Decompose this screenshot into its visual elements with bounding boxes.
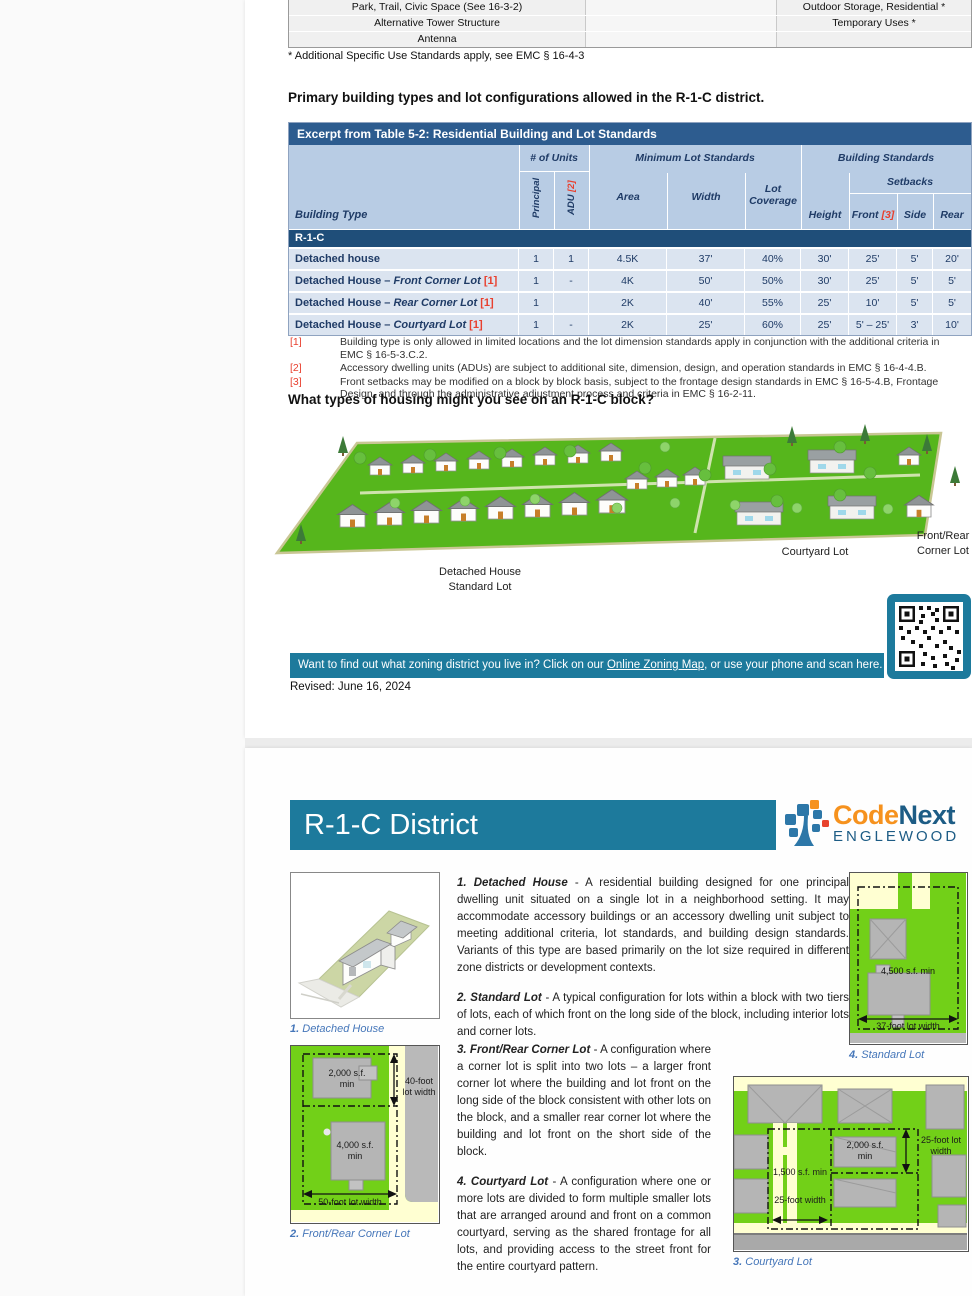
cell-height: 25': [801, 315, 849, 335]
codenext-tree-icon: [783, 800, 829, 848]
label-front-rear-corner-lot: Front/Rear Corner Lot: [911, 529, 972, 559]
diagram-label: 4,500 s.f. min: [876, 966, 940, 977]
cell-coverage: 55%: [745, 293, 801, 313]
col-header-side: Side: [897, 209, 933, 221]
diagram-label: 50-foot lot width: [306, 1197, 394, 1208]
use-cell: Outdoor Storage, Residential *: [777, 0, 971, 15]
use-cell: [586, 32, 777, 47]
caption-detached-house: 1. Detached House: [290, 1023, 384, 1035]
cell-principal: 1: [519, 315, 554, 335]
codenext-logo: CodeNext ENGLEWOOD: [783, 800, 959, 848]
paragraph-front-rear-corner-lot: 3. Front/Rear Corner Lot - A configurati…: [457, 1042, 711, 1161]
cell-width: 37': [667, 249, 745, 269]
cell-front: 5' – 25': [849, 315, 897, 335]
caption-standard-lot: 4. Standard Lot: [849, 1049, 924, 1061]
cell-coverage: 50%: [745, 271, 801, 291]
paragraph-standard-lot: 2. Standard Lot - A typical configuratio…: [457, 990, 849, 1041]
cell-side: 5': [897, 293, 933, 313]
qr-code: [887, 594, 971, 679]
use-cell: Temporary Uses *: [777, 16, 971, 31]
page-2: R-1-C District CodeNext ENGLEWOOD: [245, 748, 972, 1296]
footnote-1: [1]Building type is only allowed in limi…: [288, 336, 948, 361]
use-cell: Antenna: [289, 32, 586, 47]
cell-adu: -: [554, 315, 589, 335]
col-header-adu: ADU [2]: [554, 169, 589, 227]
cell-side: 3': [897, 315, 933, 335]
page-1: Park, Trail, Civic Space (See 16-3-2) Ou…: [245, 0, 972, 738]
cell-coverage: 60%: [745, 315, 801, 335]
cell-area: 2K: [589, 315, 667, 335]
diagram-label: 2,000 s.f. min: [321, 1068, 373, 1089]
cell-rear: 20': [933, 249, 971, 269]
neighborhood-illustration: [265, 413, 965, 565]
label-courtyard-lot: Courtyard Lot: [740, 545, 890, 560]
diagram-label: 1,500 s.f. min: [772, 1167, 828, 1178]
cell-front: 10': [849, 293, 897, 313]
table-header: # of Units Minimum Lot Standards Buildin…: [289, 145, 971, 229]
cell-area: 4.5K: [589, 249, 667, 269]
footnote-2: [2]Accessory dwelling units (ADUs) are s…: [288, 362, 948, 375]
label-detached-standard-lot: Detached House Standard Lot: [395, 565, 565, 595]
cell-rear: 10': [933, 315, 971, 335]
table-row: Alternative Tower Structure Temporary Us…: [289, 16, 971, 32]
cell-width: 50': [667, 271, 745, 291]
description-text-wide: 1. Detached House - A residential buildi…: [457, 875, 849, 1054]
paragraph-detached-house: 1. Detached House - A residential buildi…: [457, 875, 849, 977]
use-cell: [777, 32, 971, 47]
cell-adu: 1: [554, 249, 589, 269]
use-table: Park, Trail, Civic Space (See 16-3-2) Ou…: [288, 0, 972, 48]
use-cell: Alternative Tower Structure: [289, 16, 586, 31]
standards-table: Excerpt from Table 5-2: Residential Buil…: [288, 122, 972, 336]
table-row: Antenna: [289, 32, 971, 47]
table-row: Detached House – Front Corner Lot[1] 1 -…: [289, 269, 971, 291]
page-title: R-1-C District: [304, 809, 478, 841]
col-header-height: Height: [801, 209, 849, 221]
logo-next: Next: [899, 800, 956, 830]
diagram-label: 25-foot width: [772, 1195, 828, 1206]
cell-building-type: Detached House – Rear Corner Lot[1]: [289, 293, 519, 313]
cell-width: 25': [667, 315, 745, 335]
use-cell: Park, Trail, Civic Space (See 16-3-2): [289, 0, 586, 15]
logo-code: Code: [833, 800, 899, 830]
diagram-label: 37-foot lot width: [864, 1021, 952, 1032]
diagram-label: 25-foot lot width: [918, 1135, 964, 1156]
description-text-narrow: 3. Front/Rear Corner Lot - A configurati…: [457, 1042, 711, 1289]
table-row: Detached House – Courtyard Lot[1] 1 - 2K…: [289, 313, 971, 335]
cell-principal: 1: [519, 249, 554, 269]
figure-detached-house: [290, 872, 440, 1019]
figure-front-rear-corner-lot: 2,000 s.f. min 40-foot lot width 4,000 s…: [290, 1045, 440, 1224]
table-row: Detached house 1 1 4.5K 37' 40% 30' 25' …: [289, 247, 971, 269]
cell-area: 2K: [589, 293, 667, 313]
cell-front: 25': [849, 249, 897, 269]
col-header-front: Front [3]: [849, 209, 897, 221]
use-cell: [586, 0, 777, 15]
cell-coverage: 40%: [745, 249, 801, 269]
cell-side: 5': [897, 249, 933, 269]
cell-height: 30': [801, 249, 849, 269]
section-heading-building-types: Primary building types and lot configura…: [288, 90, 764, 105]
zoning-map-banner: Want to find out what zoning district yo…: [290, 653, 884, 678]
col-group-min-lot: Minimum Lot Standards: [589, 152, 801, 164]
caption-front-rear-corner-lot: 2. Front/Rear Corner Lot: [290, 1228, 410, 1240]
cell-side: 5': [897, 271, 933, 291]
paragraph-courtyard-lot: 4. Courtyard Lot - A configuration where…: [457, 1174, 711, 1276]
diagram-label: 40-foot lot width: [401, 1076, 437, 1097]
cell-rear: 5': [933, 293, 971, 313]
col-header-width: Width: [667, 191, 745, 203]
use-table-footnote: * Additional Specific Use Standards appl…: [288, 50, 584, 62]
cell-area: 4K: [589, 271, 667, 291]
diagram-label: 2,000 s.f. min: [838, 1140, 892, 1161]
caption-courtyard-lot: 3. Courtyard Lot: [733, 1256, 812, 1268]
cell-height: 30': [801, 271, 849, 291]
page-divider: [245, 738, 972, 748]
cell-rear: 5': [933, 271, 971, 291]
cell-width: 40': [667, 293, 745, 313]
table-row: Detached House – Rear Corner Lot[1] 1 2K…: [289, 291, 971, 313]
cell-adu: -: [554, 271, 589, 291]
logo-englewood: ENGLEWOOD: [833, 828, 959, 846]
col-header-area: Area: [589, 191, 667, 203]
table-title: Excerpt from Table 5-2: Residential Buil…: [289, 123, 971, 145]
col-header-setbacks: Setbacks: [849, 176, 971, 188]
col-header-principal: Principal: [519, 169, 554, 227]
use-cell: [586, 16, 777, 31]
cell-building-type: Detached House – Front Corner Lot[1]: [289, 271, 519, 291]
online-zoning-map-link[interactable]: Online Zoning Map: [607, 659, 704, 671]
table-row: Park, Trail, Civic Space (See 16-3-2) Ou…: [289, 0, 971, 16]
revised-date: Revised: June 16, 2024: [290, 681, 411, 693]
cell-principal: 1: [519, 271, 554, 291]
cell-building-type: Detached house: [289, 249, 519, 269]
col-group-units: # of Units: [519, 152, 589, 164]
section-heading-housing-types: What types of housing might you see on a…: [288, 392, 654, 407]
page-title-band: R-1-C District: [290, 800, 776, 850]
cell-front: 25': [849, 271, 897, 291]
cell-adu: [554, 293, 589, 313]
figure-standard-lot: 4,500 s.f. min 37-foot lot width: [849, 872, 968, 1045]
district-band: R-1-C: [289, 229, 971, 247]
document-viewer: { "page1": { "use_table": { "rows": [ {"…: [0, 0, 972, 1296]
col-group-building: Building Standards: [801, 152, 971, 164]
diagram-label: 4,000 s.f. min: [329, 1140, 381, 1161]
cell-height: 25': [801, 293, 849, 313]
col-header-lot-coverage: Lot Coverage: [745, 183, 801, 207]
cell-principal: 1: [519, 293, 554, 313]
col-header-rear: Rear: [933, 209, 971, 221]
figure-courtyard-lot: 2,000 s.f. min 1,500 s.f. min 25-foot wi…: [733, 1076, 969, 1252]
col-header-building-type: Building Type: [295, 209, 415, 221]
cell-building-type: Detached House – Courtyard Lot[1]: [289, 315, 519, 335]
